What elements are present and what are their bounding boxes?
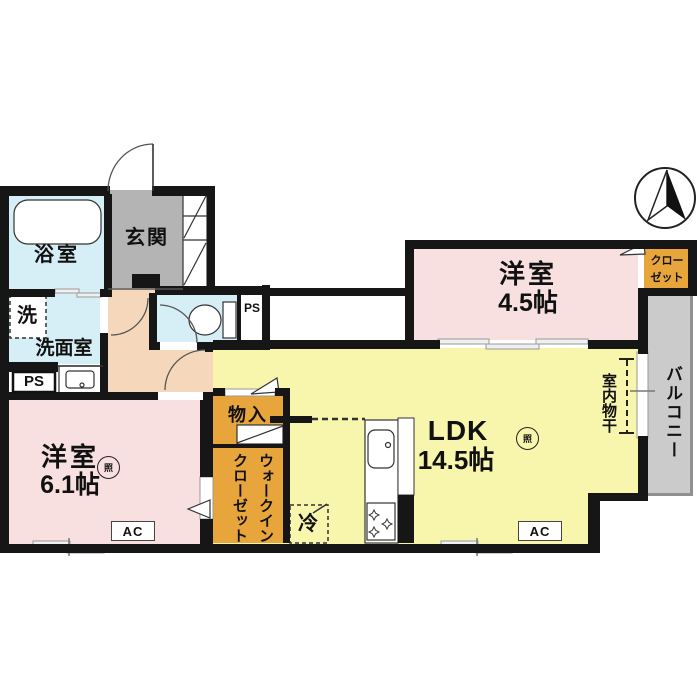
light-symbol-bedroom61: 照 xyxy=(97,456,120,479)
refrigerator-label: 冷 xyxy=(298,513,318,535)
entrance-label: 玄関 xyxy=(113,227,181,249)
wall-segment xyxy=(213,388,225,396)
wall-segment xyxy=(0,544,600,553)
washroom-label: 洗面室 xyxy=(24,339,104,360)
wall-segment xyxy=(100,289,112,297)
wall-segment xyxy=(237,293,241,342)
wall-segment xyxy=(398,495,414,543)
wall-segment xyxy=(149,342,160,350)
compass-north-icon xyxy=(635,168,695,228)
wall-segment xyxy=(638,296,648,354)
indoor-drying-label: 室内物干 xyxy=(595,357,619,449)
pipe-space-left-label: PS xyxy=(13,374,55,391)
kitchen-stove xyxy=(367,503,395,540)
bathroom-label: 浴室 xyxy=(22,244,92,266)
balcony-label: バルコニー xyxy=(655,332,687,492)
wall-segment xyxy=(132,274,160,288)
walk-in-closet-label: ウォークインクローゼット xyxy=(222,452,278,544)
wall-segment xyxy=(200,400,213,477)
wall-segment xyxy=(8,362,58,372)
ldk-area-label: 14.5帖 xyxy=(408,446,504,475)
wall-segment xyxy=(588,493,648,501)
storage-shelf xyxy=(237,425,283,444)
wall-segment xyxy=(152,186,215,196)
shoe-cabinet xyxy=(183,190,207,287)
wall-segment xyxy=(688,240,697,296)
wall-segment xyxy=(283,396,290,543)
wall-segment xyxy=(638,436,648,497)
floorplan-drawing xyxy=(0,0,700,700)
ac-unit-ldk: AC xyxy=(518,521,562,541)
vanity-sink xyxy=(59,366,101,393)
pipe-space-toilet-label: PS xyxy=(243,299,261,318)
storage-label: 物入 xyxy=(213,406,283,426)
floorplan-page: 浴室 玄関 洗 洗面室 PS PS 洋室 6.1帖 照 AC 物入 ウォークイン… xyxy=(0,0,700,700)
washer-label: 洗 xyxy=(17,305,37,327)
wall-segment xyxy=(405,240,414,348)
bedroom45-name-label: 洋室 xyxy=(486,260,570,289)
bedroom45-area-label: 4.5帖 xyxy=(484,290,572,318)
wall-segment xyxy=(0,186,110,196)
wall-segment xyxy=(275,388,290,396)
wall-segment xyxy=(213,340,440,349)
bathtub xyxy=(14,200,101,244)
wall-segment xyxy=(588,493,600,553)
wall-segment xyxy=(0,289,55,297)
ldk-cutout xyxy=(600,501,648,553)
wall-segment xyxy=(638,288,697,296)
ldk-name-label: LDK xyxy=(420,416,496,447)
wall-segment xyxy=(207,186,215,288)
wall-segment xyxy=(0,186,9,553)
wall-segment xyxy=(203,392,213,400)
closet-label: クローゼット xyxy=(648,253,686,286)
wall-segment xyxy=(200,519,213,544)
wall-segment xyxy=(213,444,283,448)
ac-unit-bedroom61: AC xyxy=(111,521,155,541)
kitchen-sink xyxy=(368,430,394,468)
wall-segment xyxy=(262,288,414,296)
wall-segment xyxy=(405,240,697,249)
entrance-door-arc xyxy=(108,144,153,191)
wall-segment xyxy=(104,194,112,293)
sliding-door-bedroom45 xyxy=(438,339,588,349)
wall-segment xyxy=(149,293,157,350)
light-symbol-ldk: 照 xyxy=(516,427,539,450)
